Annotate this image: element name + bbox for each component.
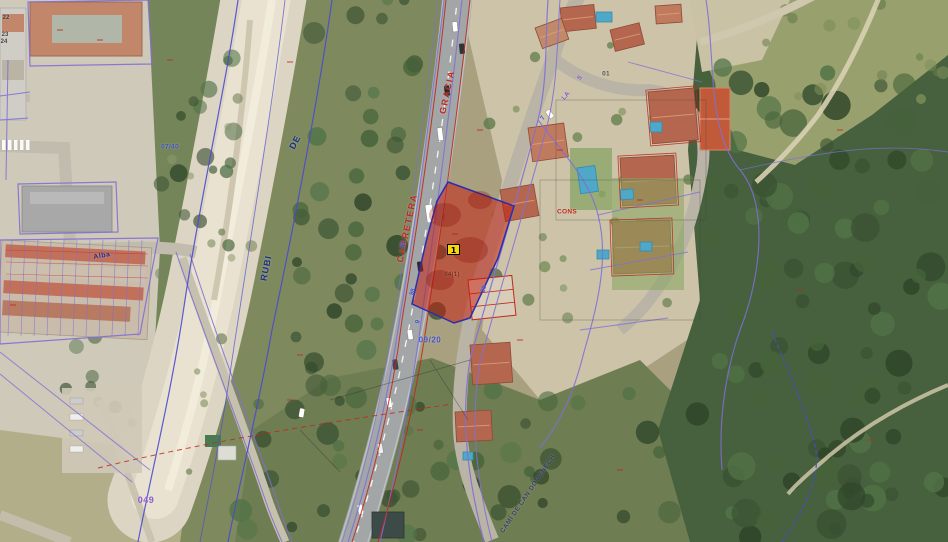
building <box>655 4 682 24</box>
building <box>528 123 568 162</box>
building <box>455 410 493 442</box>
swimming-pool <box>577 165 598 193</box>
vehicle <box>452 21 458 31</box>
swimming-pool <box>596 12 612 22</box>
building <box>470 342 513 385</box>
swimming-pool <box>650 122 662 132</box>
swimming-pool <box>620 189 634 200</box>
aerial-imagery <box>0 0 948 542</box>
parcel-marker-icon[interactable]: 1 <box>447 244 460 255</box>
building <box>648 88 698 144</box>
building <box>560 4 596 31</box>
swimming-pool <box>640 242 652 251</box>
vehicle <box>407 329 413 340</box>
cadastral-aerial-map[interactable]: GRACIACARRETERADERUBIAlba09/2004907/40CO… <box>0 0 948 542</box>
vehicle <box>444 85 450 96</box>
